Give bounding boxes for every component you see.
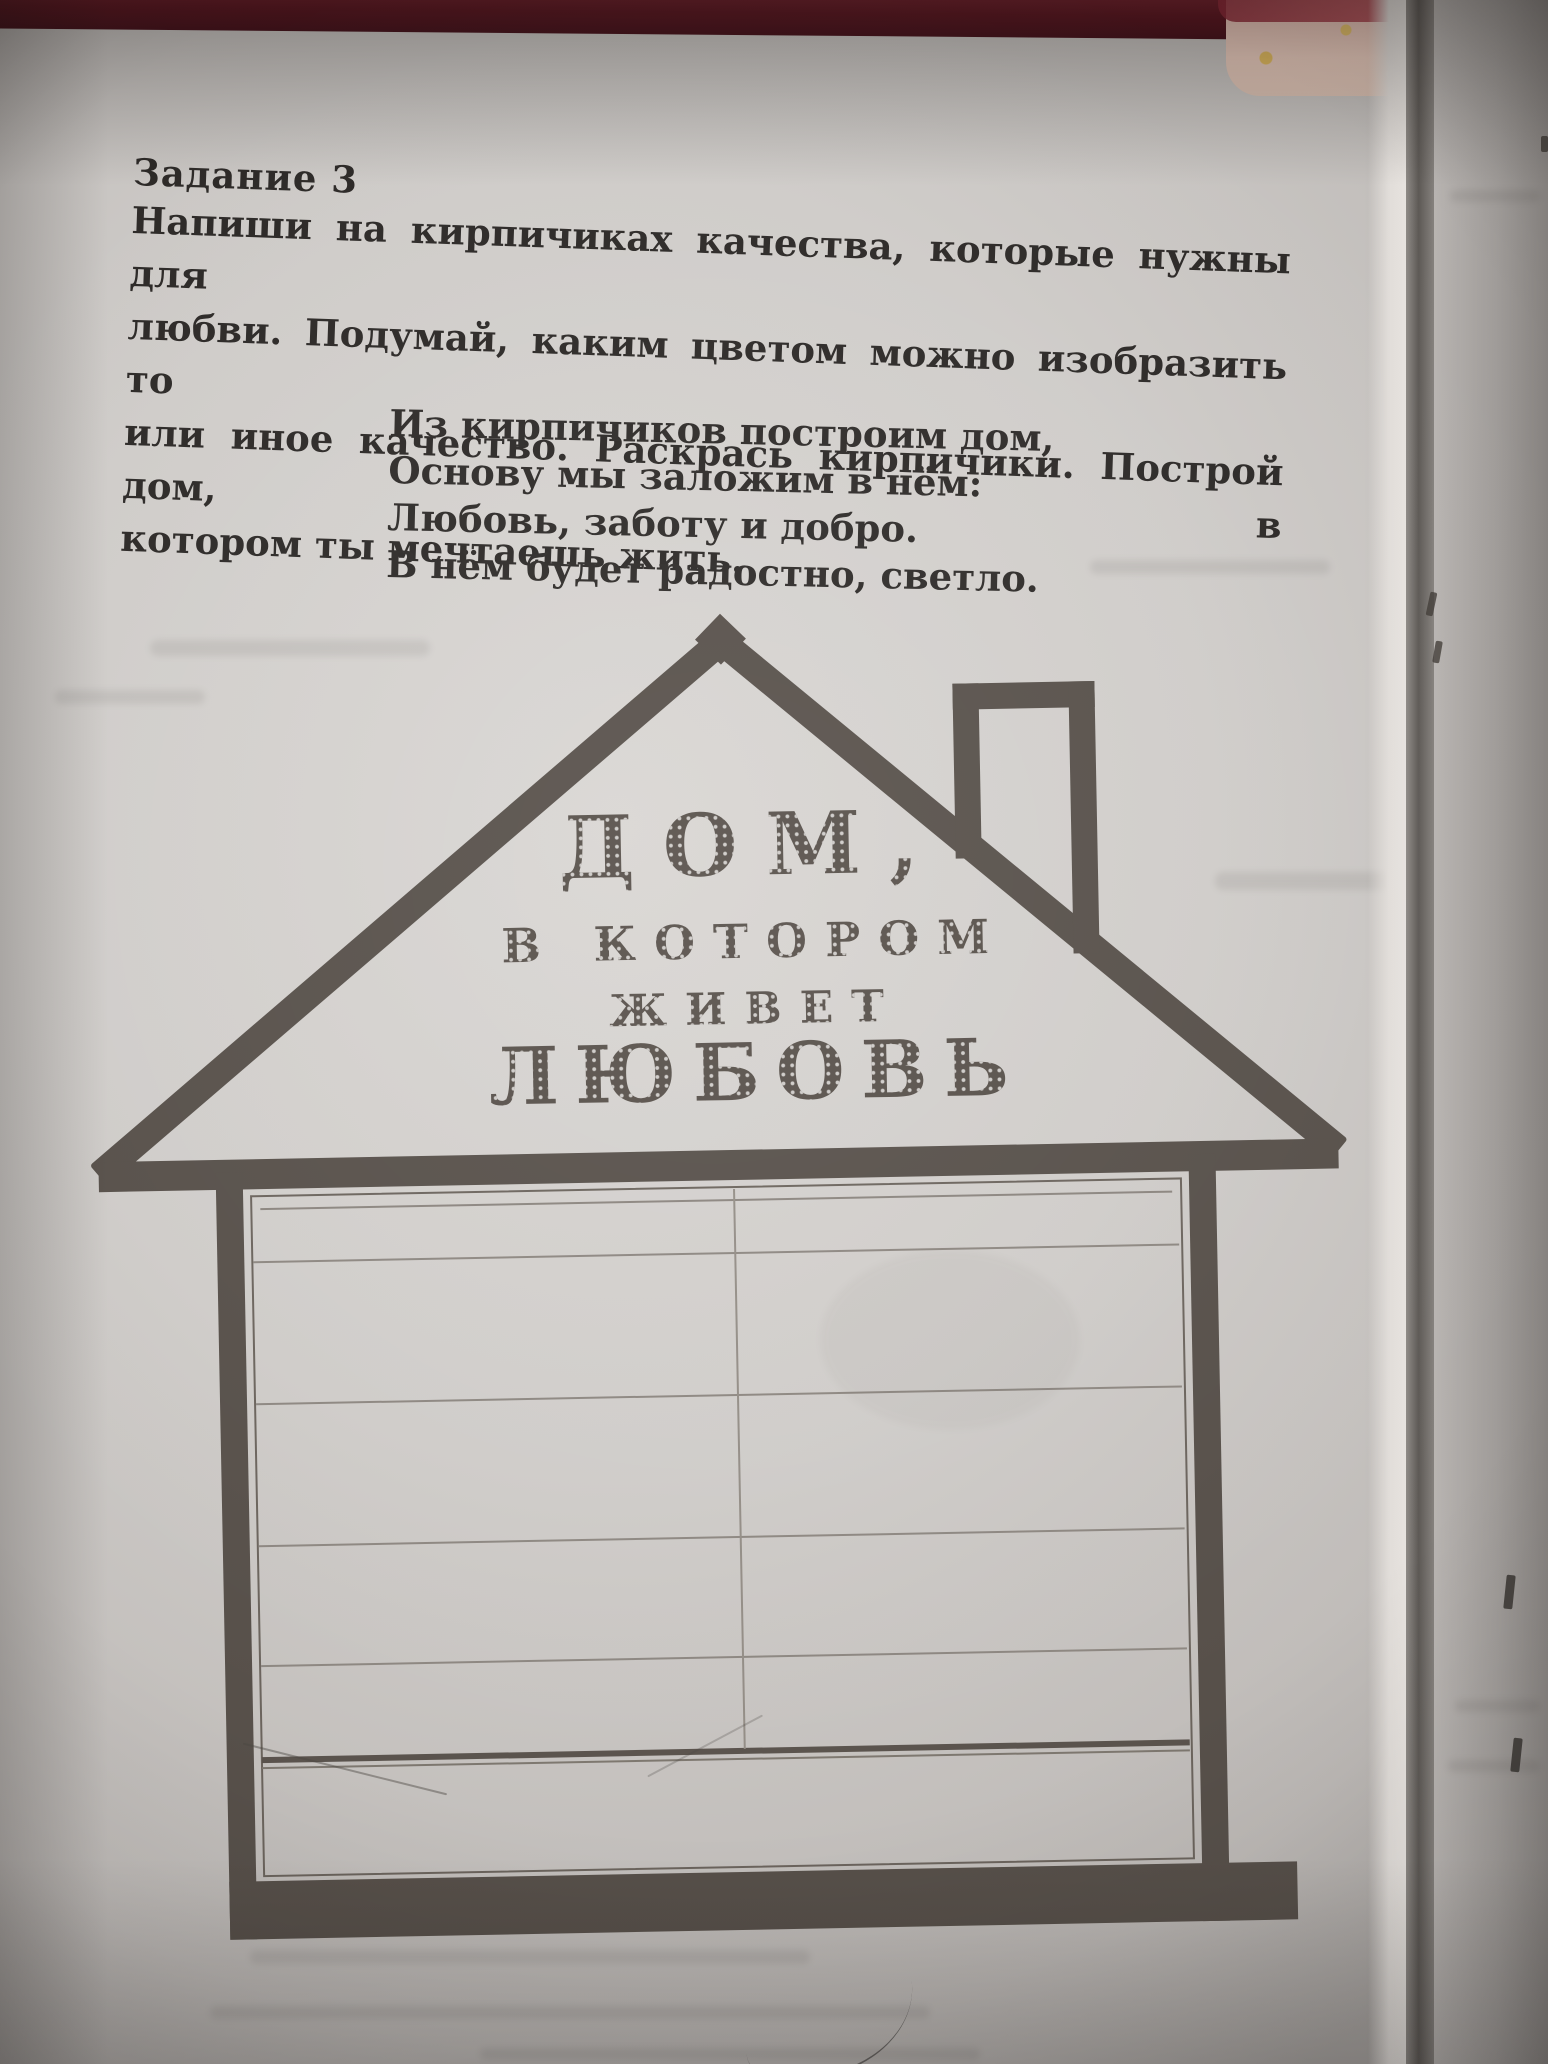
show-through-smudge [55,690,205,704]
roof-title-line: ЛЮБОВЬ [256,1016,1258,1128]
edge-print-sliver [1541,136,1548,152]
workbook-page-photo: Задание 3 Напиши на кирпичиках качества,… [0,0,1548,2064]
show-through-smudge [150,640,430,656]
show-through-smudge [1450,190,1540,202]
roof-title-line: ДОМ, [252,785,1254,905]
show-through-smudge [820,1250,1080,1430]
house-diagram: ДОМ, В КОТОРОМ ЖИВЕТ ЛЮБОВЬ [0,0,1548,2064]
page-edge-highlight [1368,0,1406,2064]
show-through-smudge [1090,560,1330,574]
page-fold-shadow [1406,0,1434,2064]
show-through-smudge [480,2048,980,2060]
show-through-smudge [1455,1700,1540,1712]
show-through-smudge [1448,1760,1540,1772]
wall-right [1188,1154,1230,1921]
show-through-smudge [250,1950,810,1964]
facing-page [1434,0,1548,2064]
bricks-grid-frame [250,1177,1195,1877]
